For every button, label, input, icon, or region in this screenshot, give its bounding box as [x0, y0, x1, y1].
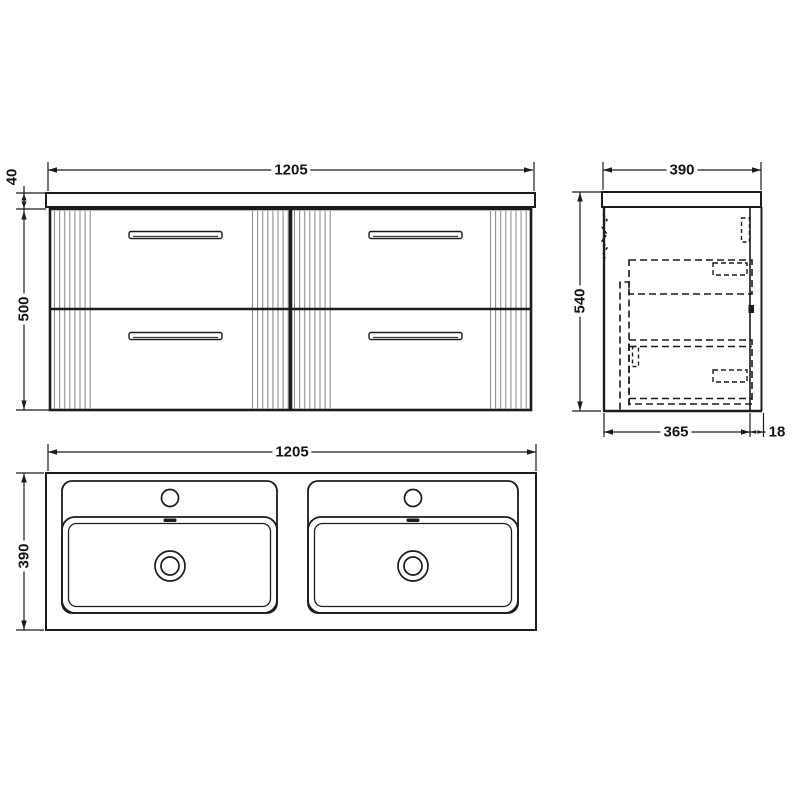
waste-drain-left-inner	[161, 557, 179, 575]
plan-width-dimension-label: 1205	[272, 444, 311, 461]
side-depth-dimension-label: 390	[666, 162, 697, 179]
waste-drain-right-inner	[404, 557, 422, 575]
waste-drain-left-outer	[155, 551, 185, 581]
overflow-slot-left	[164, 519, 177, 523]
plan-basin-left	[62, 481, 277, 613]
side-hidden-details	[620, 218, 752, 410]
plan-depth-dimension-label: 390	[16, 540, 33, 571]
front-dimension-arrows	[21, 167, 533, 409]
front-worktop-thickness-label: 40	[4, 166, 21, 189]
front-width-dimension-label: 1205	[271, 162, 310, 179]
vanity-technical-drawing-canvas: 1205 40 500 390 540 365 18 1205 390	[0, 0, 800, 799]
overflow-slot-right	[407, 519, 420, 523]
front-view	[16, 162, 535, 410]
tap-hole-left	[162, 490, 179, 507]
side-view	[572, 162, 766, 437]
front-dimension-lines	[16, 162, 534, 410]
plan-view	[16, 444, 536, 630]
side-height-dimension-label: 540	[572, 285, 589, 316]
front-drawer-handles	[129, 232, 462, 340]
side-carcass-depth-label: 365	[660, 424, 691, 441]
front-cabinet-height-label: 500	[16, 293, 33, 324]
side-back-gap-label: 18	[766, 424, 789, 441]
waste-drain-right-outer	[398, 551, 428, 581]
plan-dimension-arrows	[21, 449, 536, 629]
plan-basin-right	[308, 481, 518, 613]
side-back-panel-joint	[749, 305, 755, 313]
front-worktop	[46, 193, 535, 207]
side-worktop	[602, 192, 761, 207]
vanity-technical-drawing	[0, 0, 800, 799]
tap-hole-right	[405, 490, 422, 507]
